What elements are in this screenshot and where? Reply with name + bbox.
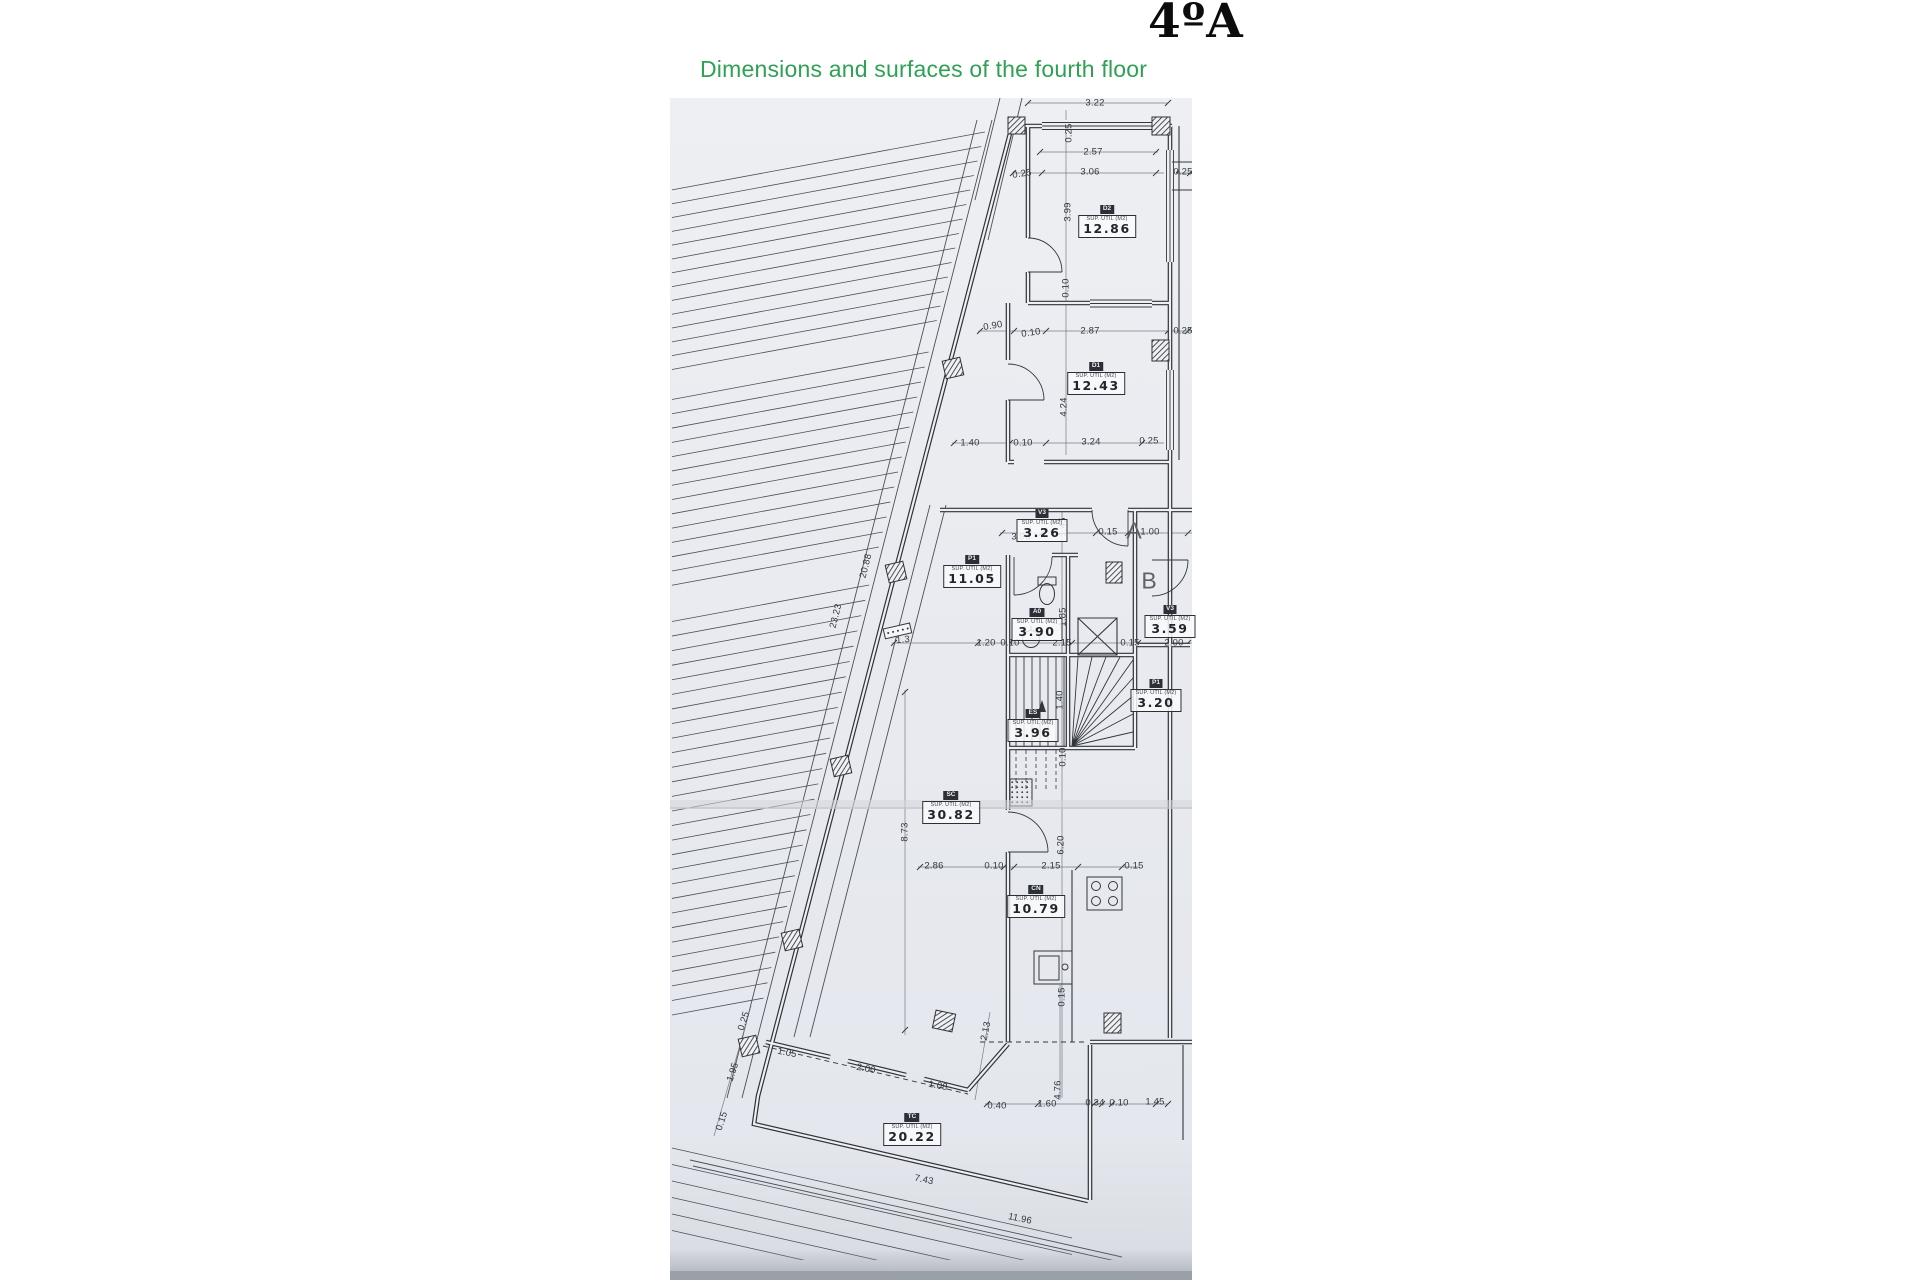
dimension-label: 7.43 <box>913 1173 934 1188</box>
room-label: CNSUP. UTIL (M2)10.79 <box>1007 878 1065 918</box>
room-area-value: 12.86 <box>1083 223 1131 236</box>
dimension-label: 0.15 <box>1120 638 1139 649</box>
dimension-label: 0.34 <box>1085 1098 1104 1109</box>
dimension-label: 1.60 <box>1037 1099 1056 1110</box>
room-label: A0SUP. UTIL (M2)3.90 <box>1011 601 1062 641</box>
room-area-value: 10.79 <box>1012 903 1060 916</box>
dimension-label: 4.24 <box>1059 397 1070 416</box>
room-label: V3SUP. UTIL (M2)3.59 <box>1144 598 1195 638</box>
scan-shadow-fade <box>670 1249 1192 1271</box>
dimension-label: 23.23 <box>828 603 845 630</box>
dimension-label: 1.95 <box>725 1061 741 1083</box>
dimension-label: 1.20 <box>976 638 995 649</box>
dimension-label: 0.90 <box>983 319 1004 333</box>
dimension-label: 2.57 <box>1083 147 1102 158</box>
room-label: SCSUP. UTIL (M2)30.82 <box>922 784 980 824</box>
room-area-value: 3.59 <box>1149 623 1190 636</box>
dimension-label: 0.10 <box>984 861 1003 872</box>
dimension-label: 20.88 <box>858 553 875 580</box>
room-code: TC <box>905 1113 920 1123</box>
room-code: D1 <box>1089 362 1103 372</box>
room-code: V3 <box>1163 605 1177 615</box>
section-letter-a: A <box>1126 518 1141 545</box>
page-title: 4ºA <box>1148 0 1244 49</box>
page-subtitle: Dimensions and surfaces of the fourth fl… <box>700 56 1147 83</box>
dimension-label: 0.25 <box>1139 436 1158 447</box>
scan-shadow-bar <box>670 1271 1192 1280</box>
dimension-label: 1.00 <box>1140 527 1159 538</box>
dimension-label: 2.00 <box>1164 638 1183 649</box>
dimension-label: 0.25 <box>1012 167 1033 181</box>
dimension-label: 3.24 <box>1081 437 1100 448</box>
dimension-label: 3.06 <box>1080 167 1099 178</box>
room-area-value: 30.82 <box>927 809 975 822</box>
room-code: V3 <box>1035 509 1049 519</box>
dimension-label: 2.00 <box>855 1062 876 1076</box>
room-area-value: 3.90 <box>1016 626 1057 639</box>
dimension-label: 0.15 <box>1057 987 1068 1006</box>
dimension-label: 0.10 <box>1058 747 1069 766</box>
dimension-label: 11.96 <box>1007 1211 1033 1227</box>
room-area-value: 3.26 <box>1021 527 1062 540</box>
dimension-label: 0.40 <box>987 1101 1006 1112</box>
room-code: A0 <box>1030 608 1044 618</box>
dimension-label: 1.3 <box>896 634 911 646</box>
dimension-label: 2.87 <box>1080 326 1099 337</box>
dimension-label: 1.05 <box>776 1046 797 1060</box>
dimension-label: 0.10 <box>1109 1098 1128 1109</box>
dimension-label: 0.25 <box>1173 167 1192 178</box>
dimension-label: 1.45 <box>1145 1097 1164 1108</box>
dimension-label: 0.10 <box>1021 326 1042 340</box>
room-area-value: 11.05 <box>948 573 996 586</box>
dimension-label: 1.40 <box>960 438 979 449</box>
dimension-label: 0.15 <box>714 1110 730 1132</box>
room-label: V3SUP. UTIL (M2)3.26 <box>1016 502 1067 542</box>
dimension-label: 3.22 <box>1085 98 1104 109</box>
dimension-label: 0.10 <box>1013 438 1032 449</box>
floor-plan-scan: 3.220.252.570.253.060.253.990.100.900.10… <box>670 98 1192 1280</box>
room-label: ESSUP. UTIL (M2)3.96 <box>1007 702 1058 742</box>
dimension-label: 0.15 <box>1098 527 1117 538</box>
dimension-label: 3.99 <box>1063 202 1074 221</box>
room-area-value: 3.20 <box>1135 697 1176 710</box>
dimension-label: 8.73 <box>900 822 911 841</box>
room-code: D2 <box>1100 205 1114 215</box>
room-area-value: 12.43 <box>1072 380 1120 393</box>
dimension-label: 6.20 <box>1056 835 1067 854</box>
dimension-label: 2.86 <box>924 861 943 872</box>
room-code: P1 <box>1149 679 1163 689</box>
room-label: P1SUP. UTIL (M2)11.05 <box>943 548 1001 588</box>
room-label: D2SUP. UTIL (M2)12.86 <box>1078 198 1136 238</box>
room-area-value: 3.96 <box>1012 727 1053 740</box>
room-label: TCSUP. UTIL (M2)20.22 <box>883 1106 941 1146</box>
plan-labels: 3.220.252.570.253.060.253.990.100.900.10… <box>670 98 1192 1280</box>
dimension-label: 0.10 <box>1061 278 1072 297</box>
room-label: D1SUP. UTIL (M2)12.43 <box>1067 355 1125 395</box>
room-code: ES <box>1026 709 1041 719</box>
room-code: CN <box>1028 885 1043 895</box>
dimension-label: 1.08 <box>927 1079 948 1093</box>
dimension-label: 2.15 <box>1041 861 1060 872</box>
room-code: SC <box>943 791 958 801</box>
dimension-label: 0.25 <box>1173 326 1192 337</box>
room-code: P1 <box>965 555 979 565</box>
dimension-label: 2.13 <box>979 1020 994 1041</box>
dimension-label: 0.25 <box>736 1010 752 1032</box>
dimension-label: 0.25 <box>1064 123 1075 142</box>
room-label: P1SUP. UTIL (M2)3.20 <box>1130 672 1181 712</box>
room-area-value: 20.22 <box>888 1131 936 1144</box>
dimension-label: 4.76 <box>1053 1080 1064 1099</box>
dimension-label: 0.15 <box>1124 861 1143 872</box>
section-letter-b: B <box>1141 568 1156 595</box>
